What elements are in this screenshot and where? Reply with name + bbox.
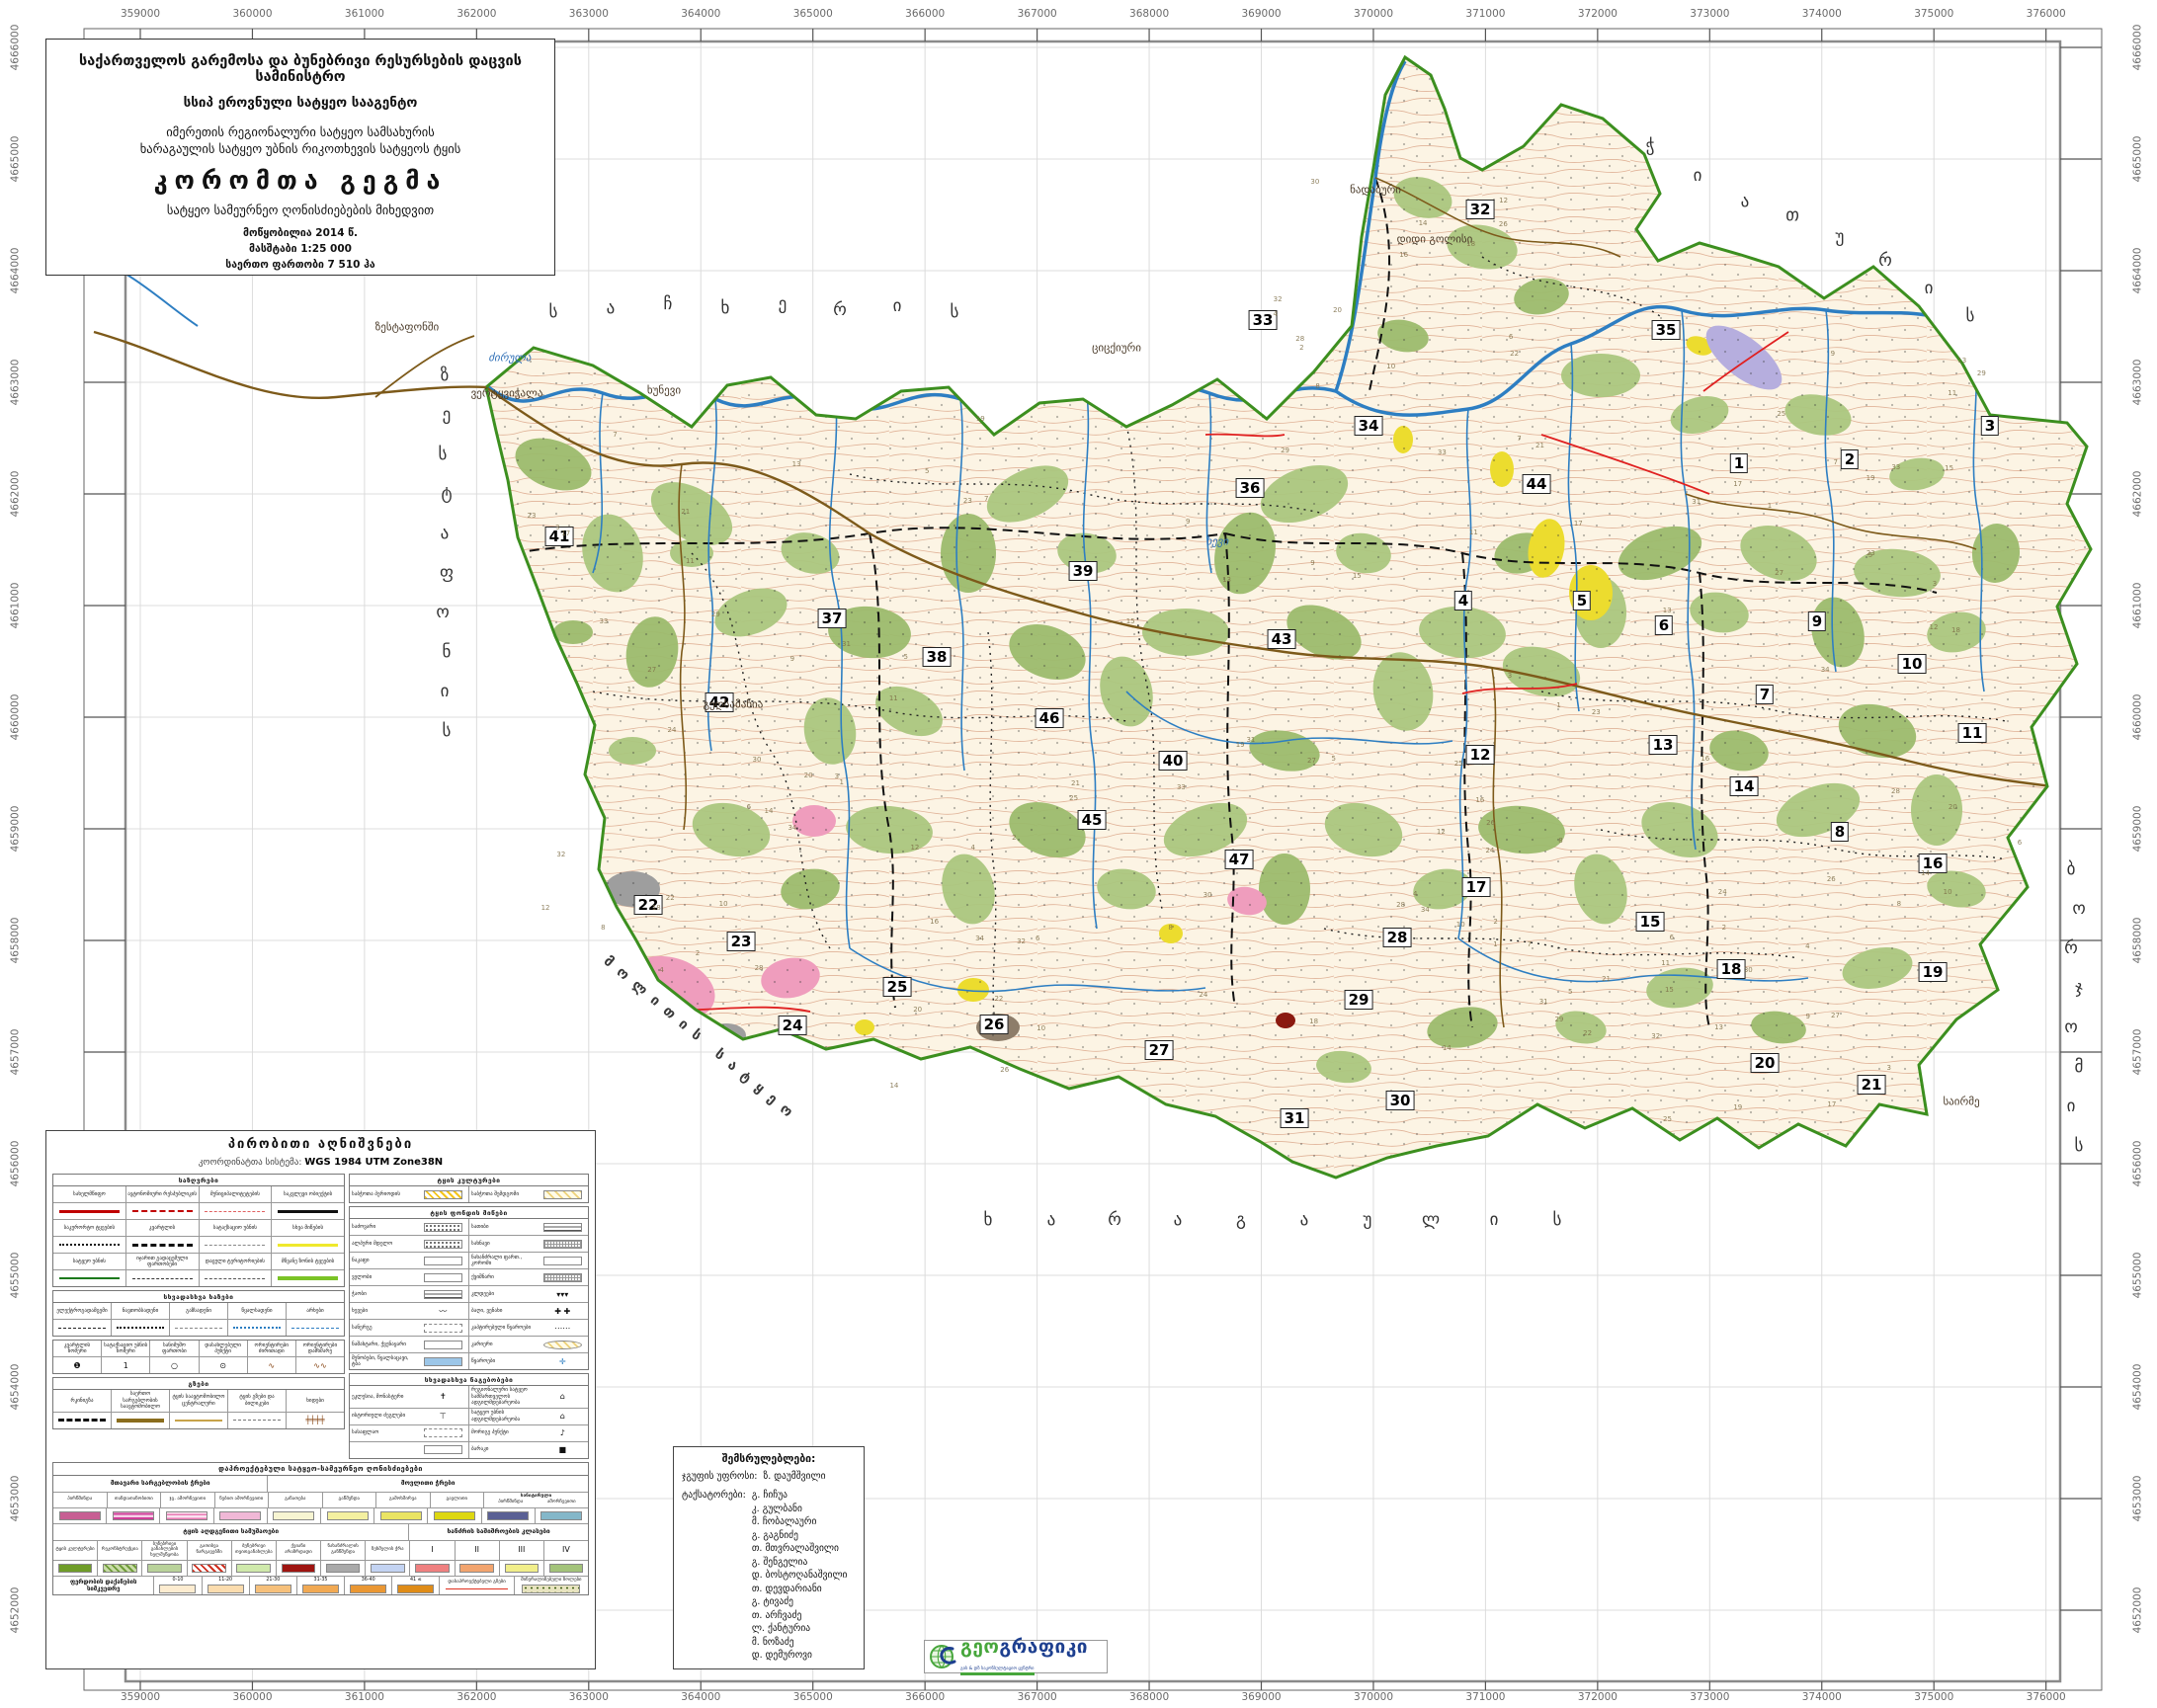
sub-number: 10 bbox=[1386, 363, 1395, 370]
taxator-name: მ. ნოზაძე bbox=[752, 1637, 848, 1648]
boundary-letter: ი bbox=[2067, 1097, 2076, 1116]
sub-number: 33 bbox=[1177, 783, 1186, 791]
sub-number: 16 bbox=[1475, 796, 1484, 804]
sub-number: 10 bbox=[1944, 888, 1952, 896]
sub-number: 32 bbox=[1651, 1032, 1660, 1040]
sub-number: 6 bbox=[747, 803, 751, 811]
sub-number: 1 bbox=[840, 778, 844, 786]
compartment-number: 4 bbox=[1454, 591, 1472, 610]
sub-number: 11 bbox=[1469, 529, 1478, 536]
geographic-logo: გეოგრაფიკი გის & დზ საკონსულტაციო ცენტრი bbox=[924, 1640, 1108, 1673]
compartment-number: 25 bbox=[883, 977, 912, 997]
sub-number: 3 bbox=[1508, 672, 1512, 680]
boundary-letter: რ bbox=[833, 300, 847, 320]
boundary-letter: ს bbox=[439, 445, 448, 464]
sub-number: 2 bbox=[1299, 344, 1303, 352]
sub-number: 23 bbox=[963, 497, 972, 505]
sub-number: 7 bbox=[1517, 435, 1521, 443]
compartment-number: 43 bbox=[1268, 629, 1296, 649]
sub-number: 9 bbox=[1831, 350, 1835, 358]
sub-number: 15 bbox=[1353, 572, 1362, 580]
compartment-number: 2 bbox=[1841, 449, 1859, 469]
sub-number: 5 bbox=[1332, 755, 1336, 763]
sub-number: 25 bbox=[1069, 794, 1078, 802]
sub-number: 12 bbox=[910, 844, 919, 852]
boundary-letter: რ bbox=[1878, 251, 1892, 271]
sub-number: 30 bbox=[1203, 891, 1212, 899]
sub-number: 33 bbox=[599, 617, 608, 625]
boundary-letter: ი bbox=[893, 296, 902, 316]
compartment-number: 27 bbox=[1145, 1040, 1174, 1060]
sub-number: 12 bbox=[1437, 828, 1446, 836]
compartment-number: 15 bbox=[1636, 912, 1665, 932]
compartment-number: 17 bbox=[1462, 877, 1491, 897]
boundary-letter: ა bbox=[1741, 192, 1750, 211]
compartment-number: 38 bbox=[923, 647, 952, 667]
boundary-letter: მ bbox=[2075, 1057, 2084, 1077]
sub-number: 1 bbox=[1556, 701, 1560, 709]
sub-number: 14 bbox=[1419, 219, 1428, 227]
compartment-number: 18 bbox=[1717, 959, 1746, 979]
taxator-name: გ. შენგელია bbox=[752, 1557, 848, 1568]
sub-number: 27 bbox=[647, 666, 656, 674]
sub-number: 6 bbox=[1670, 934, 1674, 941]
compartment-number: 8 bbox=[1831, 822, 1849, 842]
sub-number: 24 bbox=[1718, 888, 1727, 896]
place-label: გედსამანია bbox=[704, 698, 764, 711]
sub-number: 34 bbox=[788, 824, 796, 832]
boundary-letter: ს bbox=[549, 302, 558, 322]
sub-number: 7 bbox=[613, 431, 617, 439]
sub-number: 31 bbox=[1539, 998, 1548, 1006]
coord-system-value: WGS 1984 UTM Zone38N bbox=[304, 1157, 443, 1168]
map-main-title: კორომთა გეგმა bbox=[46, 166, 554, 195]
boundary-letter: ბ bbox=[2067, 859, 2076, 879]
place-label: ვერტყვიჭალა bbox=[471, 387, 543, 400]
place-label: ზესტაფონში bbox=[375, 321, 439, 334]
sub-number: 7 bbox=[984, 495, 988, 503]
compartment-number: 9 bbox=[1808, 611, 1826, 631]
taxator-name: დ. დემუროვი bbox=[752, 1650, 848, 1661]
sub-number: 9 bbox=[1186, 518, 1190, 526]
sub-number: 10 bbox=[719, 900, 728, 908]
compartment-number: 37 bbox=[818, 609, 847, 628]
boundary-letter: ო bbox=[436, 603, 449, 622]
sub-number: 3 bbox=[555, 524, 559, 531]
legend: პირობითი აღნიშვნები კოორდინატთა სისტემა:… bbox=[45, 1130, 596, 1669]
sub-number: 14 bbox=[765, 807, 774, 815]
sub-number: 18 bbox=[1309, 1017, 1318, 1025]
compartment-number: 6 bbox=[1655, 615, 1673, 635]
place-label: ძირულა bbox=[488, 352, 531, 365]
logo-subtext: გის & დზ საკონსულტაციო ცენტრი bbox=[960, 1667, 1035, 1675]
globe-icon bbox=[929, 1643, 956, 1670]
sub-number: 17 bbox=[1827, 1100, 1836, 1108]
sub-number: 20 bbox=[1333, 306, 1342, 314]
sub-number: 15 bbox=[1665, 986, 1674, 994]
sub-number: 1 bbox=[627, 686, 631, 693]
sub-number: 8 bbox=[1315, 382, 1319, 390]
boundary-letter: რ bbox=[1108, 1210, 1121, 1230]
boundary-letter: ი bbox=[1694, 166, 1702, 186]
sub-number: 3 bbox=[1886, 1064, 1890, 1072]
sub-number: 2 bbox=[1012, 834, 1016, 842]
sub-number: 12 bbox=[1930, 623, 1939, 631]
sub-number: 11 bbox=[686, 557, 695, 565]
sub-number: 5 bbox=[1568, 988, 1572, 996]
sub-number: 4 bbox=[1413, 890, 1417, 898]
sub-number: 27 bbox=[1307, 757, 1316, 765]
place-label: ნადაბური bbox=[1350, 184, 1401, 197]
sub-number: 1 bbox=[1768, 502, 1772, 510]
sub-number: 25 bbox=[1777, 410, 1785, 418]
compartment-number: 10 bbox=[1898, 654, 1927, 674]
compartment-number: 3 bbox=[1981, 416, 1999, 436]
compartment-number: 5 bbox=[1573, 591, 1591, 610]
sub-number: 26 bbox=[1827, 875, 1836, 883]
compartment-number: 46 bbox=[1036, 708, 1064, 728]
sub-number: 34 bbox=[975, 935, 984, 942]
sub-number: 27 bbox=[1775, 569, 1784, 577]
boundary-letter: ი bbox=[441, 682, 450, 701]
boundary-letter: ს bbox=[951, 302, 959, 322]
sub-number: 17 bbox=[1574, 520, 1583, 528]
sub-number: 24 bbox=[1485, 847, 1494, 854]
sub-number: 8 bbox=[1558, 837, 1562, 845]
sub-number: 25 bbox=[1454, 760, 1463, 768]
sub-number: 28 bbox=[1396, 901, 1405, 909]
sub-number: 29 bbox=[1554, 1016, 1563, 1023]
compartment-number: 11 bbox=[1958, 723, 1987, 743]
boundary-letter: ო bbox=[2072, 899, 2085, 919]
sub-number: 26 bbox=[1486, 819, 1495, 827]
place-label: ხევი bbox=[1206, 535, 1229, 548]
boundary-letter: ს bbox=[1966, 306, 1975, 326]
sub-number: 16 bbox=[1399, 251, 1408, 259]
sub-number: 9 bbox=[790, 655, 794, 663]
logo-text-geo: გეო bbox=[960, 1636, 999, 1658]
sub-number: 19 bbox=[1733, 1103, 1742, 1111]
boundary-letter: ე bbox=[443, 405, 452, 425]
sub-number: 34 bbox=[1421, 906, 1430, 914]
taxator-name: გ. ტივაძე bbox=[752, 1596, 848, 1607]
boundary-letter: თ bbox=[1785, 205, 1799, 225]
boundary-letter: ჯ bbox=[2075, 978, 2083, 998]
sub-number: 26 bbox=[1000, 1066, 1009, 1074]
place-label: საირმე bbox=[1943, 1096, 1979, 1108]
taxator-name: მ. ჩობალაური bbox=[752, 1516, 848, 1527]
compartment-number: 40 bbox=[1159, 751, 1188, 771]
compartment-number: 32 bbox=[1466, 200, 1495, 219]
sub-number: 29 bbox=[1281, 447, 1289, 454]
boundary-letter: ნ bbox=[443, 642, 452, 662]
compartment-number: 31 bbox=[1281, 1108, 1309, 1128]
sub-number: 3 bbox=[835, 773, 839, 780]
sub-number: 5 bbox=[1868, 551, 1872, 559]
sub-number: 13 bbox=[1714, 1023, 1723, 1031]
sub-number: 3 bbox=[1933, 580, 1937, 588]
sub-number: 16 bbox=[1701, 755, 1709, 763]
executors-title: შემსრულებლები: bbox=[682, 1453, 856, 1465]
sub-number: 19 bbox=[1236, 741, 1245, 749]
taxator-name: თ. დევდარიანი bbox=[752, 1584, 848, 1594]
taxators-list: გ. ჩიჩუაკ. გულბანიმ. ჩობალაურიგ. გაგნიძე… bbox=[752, 1490, 848, 1664]
sub-number: 20 bbox=[913, 1006, 922, 1014]
sub-number: 19 bbox=[976, 415, 985, 423]
sub-number: 11 bbox=[1948, 389, 1956, 397]
sub-number: 29 bbox=[1977, 369, 1986, 377]
sub-number: 21 bbox=[1602, 975, 1611, 983]
sub-number: 26 bbox=[1499, 220, 1508, 228]
taxator-name: კ. გულბანი bbox=[752, 1504, 848, 1514]
sub-number: 10 bbox=[1037, 1024, 1045, 1032]
boundary-letter: გ bbox=[1236, 1210, 1246, 1230]
sub-number: 8 bbox=[1897, 900, 1901, 908]
sub-number: 9 bbox=[1806, 1013, 1810, 1020]
boundary-letter: უ bbox=[1836, 227, 1845, 247]
sub-number: 18 bbox=[1951, 626, 1960, 634]
unit-line: ხარაგაულის სატყეო უბნის რიკოთხევის სატყე… bbox=[46, 141, 554, 156]
boundary-letter: ს bbox=[2075, 1136, 2084, 1156]
sub-number: 21 bbox=[1071, 779, 1080, 787]
sub-number: 23 bbox=[1592, 708, 1601, 716]
compartment-number: 13 bbox=[1649, 735, 1678, 755]
sub-number: 14 bbox=[1443, 1044, 1452, 1052]
sub-number: 12 bbox=[541, 904, 550, 912]
compartment-number: 14 bbox=[1730, 776, 1759, 796]
sub-number: 5 bbox=[904, 653, 908, 661]
boundary-letter: ა bbox=[1300, 1210, 1309, 1230]
sub-number: 7 bbox=[1834, 458, 1838, 466]
boundary-letter: ე bbox=[779, 294, 788, 314]
boundary-letter: ი bbox=[1490, 1210, 1499, 1230]
sub-number: 17 bbox=[1733, 480, 1742, 488]
sub-number: 21 bbox=[681, 508, 690, 516]
taxator-name: ლ. ქანტურია bbox=[752, 1623, 848, 1634]
agency-title: სსიპ ეროვნული სატყეო სააგენტო bbox=[46, 95, 554, 111]
sub-number: 10 bbox=[1456, 921, 1465, 929]
boundary-letter: რ bbox=[2064, 938, 2078, 958]
sub-number: 11 bbox=[889, 694, 898, 702]
compartment-number: 1 bbox=[1730, 453, 1748, 473]
sub-number: 20 bbox=[1949, 803, 1957, 811]
sub-number: 2 bbox=[1493, 918, 1497, 926]
sub-number: 15 bbox=[1945, 464, 1953, 472]
taxator-name: დ. ბოსტოღანაშვილი bbox=[752, 1570, 848, 1581]
sub-number: 32 bbox=[1017, 937, 1026, 945]
compartment-number: 45 bbox=[1078, 810, 1107, 830]
leader-name: ზ. დაუმშვილი bbox=[763, 1471, 825, 1482]
boundary-letter: ს bbox=[443, 721, 452, 741]
compartment-number: 19 bbox=[1919, 962, 1948, 982]
sub-number: 4 bbox=[1805, 942, 1809, 950]
compartment-number: 39 bbox=[1069, 561, 1098, 581]
boundary-letter: ტ bbox=[441, 484, 452, 504]
sub-number: 18 bbox=[1466, 240, 1475, 248]
total-area: საერთო ფართობი 7 510 ჰა bbox=[46, 259, 554, 271]
taxator-name: გ. გაგნიძე bbox=[752, 1530, 848, 1541]
subtitle: სატყეო სამეურნეო ღონისძიებების მიხედვით bbox=[46, 203, 554, 217]
taxator-name: თ. მთვრალაშვილი bbox=[752, 1543, 848, 1554]
sub-number: 27 bbox=[1831, 1012, 1840, 1019]
sub-number: 12 bbox=[1499, 197, 1508, 204]
sub-number: 25 bbox=[1663, 1115, 1672, 1123]
taxator-name: თ. არჩვაძე bbox=[752, 1610, 848, 1621]
sub-number: 19 bbox=[1867, 474, 1875, 482]
boundary-letter: ჩ bbox=[664, 294, 673, 314]
sub-number: 8 bbox=[1168, 924, 1172, 932]
sub-number: 13 bbox=[1957, 357, 1966, 365]
sub-number: 6 bbox=[2018, 839, 2022, 847]
place-label: ციცქიური bbox=[1092, 342, 1141, 355]
sub-number: 22 bbox=[666, 894, 675, 902]
compartment-number: 23 bbox=[727, 932, 756, 951]
boundary-letter: ჭ bbox=[1646, 136, 1655, 156]
sub-number: 5 bbox=[925, 467, 929, 475]
sub-number: 14 bbox=[889, 1082, 898, 1090]
place-label: დიდი გოლისი bbox=[1397, 233, 1473, 246]
sub-number: 13 bbox=[792, 460, 801, 468]
sub-number: 24 bbox=[667, 726, 676, 734]
compartment-number: 35 bbox=[1652, 320, 1681, 340]
taxators-label: ტაქსატორები: bbox=[682, 1490, 746, 1664]
boundary-letter: ხ bbox=[721, 298, 730, 318]
logo-text-graphic: გრაფიკი bbox=[999, 1636, 1088, 1658]
boundary-letter: ხ bbox=[984, 1210, 993, 1230]
boundary-letter: ა bbox=[441, 524, 450, 543]
sub-number: 21 bbox=[1535, 442, 1544, 449]
sub-number: 31 bbox=[842, 640, 851, 648]
compartment-number: 20 bbox=[1751, 1053, 1780, 1073]
map-scale: მასშტაბი 1:25 000 bbox=[46, 243, 554, 255]
sub-number: 29 bbox=[711, 610, 720, 618]
sub-number: 2 bbox=[696, 949, 700, 957]
sub-number: 32 bbox=[556, 851, 565, 858]
sub-number: 30 bbox=[753, 756, 762, 764]
sub-number: 33 bbox=[1891, 463, 1900, 471]
place-label: ხუნევი bbox=[647, 384, 681, 397]
compartment-number: 36 bbox=[1236, 478, 1265, 498]
sub-number: 17 bbox=[561, 529, 570, 537]
legend-measures: დაპროექტებული სატყეო-სამეურნეო ღონისძიებ… bbox=[52, 1462, 589, 1596]
sub-number: 22 bbox=[1583, 1029, 1592, 1037]
sub-number: 30 bbox=[1310, 178, 1319, 186]
compartment-number: 29 bbox=[1345, 990, 1373, 1010]
sub-number: 16 bbox=[930, 918, 939, 926]
sub-number: 15 bbox=[1126, 617, 1135, 625]
boundary-letter: ა bbox=[1047, 1210, 1056, 1230]
ministry-title: საქართველოს გარემოსა და ბუნებრივი რესურს… bbox=[56, 53, 544, 85]
survey-year: მოწყობილია 2014 წ. bbox=[46, 227, 554, 239]
sub-number: 28 bbox=[1891, 787, 1900, 795]
boundary-letter: ლ bbox=[1422, 1210, 1440, 1230]
compartment-number: 30 bbox=[1386, 1091, 1415, 1110]
compartment-number: 12 bbox=[1466, 745, 1495, 765]
sub-number: 9 bbox=[1310, 559, 1314, 567]
legend-title: პირობითი აღნიშვნები bbox=[52, 1137, 589, 1152]
compartment-number: 7 bbox=[1756, 685, 1774, 704]
executors-box: შემსრულებლები: ჯგუფის უფროსი: ზ. დაუმშვი… bbox=[673, 1446, 865, 1669]
sub-number: 6 bbox=[1036, 935, 1039, 942]
sub-number: 23 bbox=[528, 512, 537, 520]
compartment-number: 47 bbox=[1225, 850, 1254, 869]
sub-number: 28 bbox=[1295, 335, 1304, 343]
sub-number: 2 bbox=[1722, 924, 1726, 932]
sub-number: 31 bbox=[1692, 498, 1701, 506]
sub-number: 31 bbox=[1246, 736, 1255, 744]
sub-number: 8 bbox=[601, 924, 605, 932]
compartment-number: 24 bbox=[779, 1016, 807, 1035]
boundary-letter: უ bbox=[1364, 1210, 1372, 1230]
leader-label: ჯგუფის უფროსი: bbox=[682, 1471, 757, 1482]
sub-number: 30 bbox=[1744, 966, 1753, 974]
sub-number: 20 bbox=[804, 772, 813, 779]
boundary-letter: ზ bbox=[441, 366, 450, 385]
sub-number: 4 bbox=[659, 966, 663, 974]
sub-number: 18 bbox=[652, 904, 661, 912]
compartment-number: 44 bbox=[1523, 474, 1551, 494]
sub-number: 24 bbox=[1199, 991, 1207, 999]
sub-number: 33 bbox=[1438, 448, 1447, 456]
boundary-letter: ა bbox=[1174, 1210, 1183, 1230]
compartment-number: 26 bbox=[980, 1015, 1009, 1034]
sub-number: 11 bbox=[1661, 959, 1670, 967]
compartment-number: 34 bbox=[1355, 416, 1383, 436]
sub-number: 34 bbox=[1821, 666, 1830, 674]
boundary-letter: ო bbox=[2064, 1017, 2077, 1037]
sub-number: 4 bbox=[970, 844, 974, 852]
sub-number: 1 bbox=[1493, 940, 1497, 948]
coord-system-label: კოორდინატთა სისტემა: bbox=[199, 1158, 302, 1168]
sub-number: 4 bbox=[1274, 310, 1278, 318]
sub-number: 28 bbox=[755, 964, 764, 972]
title-block: საქართველოს გარემოსა და ბუნებრივი რესურს… bbox=[45, 39, 555, 276]
sub-number: 14 bbox=[1921, 869, 1930, 877]
sub-number: 13 bbox=[1222, 576, 1231, 584]
boundary-letter: ი bbox=[1925, 279, 1934, 298]
compartment-number: 28 bbox=[1383, 928, 1412, 947]
compartment-number: 21 bbox=[1858, 1075, 1886, 1095]
sub-number: 13 bbox=[1663, 607, 1672, 614]
boundary-letter: ა bbox=[607, 298, 616, 318]
taxator-name: გ. ჩიჩუა bbox=[752, 1490, 848, 1501]
service-line: იმერეთის რეგიონალური სატყეო სამსახურის bbox=[46, 124, 554, 139]
boundary-letter: ს bbox=[1553, 1210, 1562, 1230]
sub-number: 7 bbox=[1528, 940, 1532, 948]
sub-number: 32 bbox=[1274, 295, 1283, 303]
sub-number: 6 bbox=[1509, 333, 1513, 341]
sub-number: 22 bbox=[1510, 350, 1519, 358]
boundary-letter: ფ bbox=[440, 563, 454, 583]
sub-number: 22 bbox=[994, 995, 1003, 1003]
